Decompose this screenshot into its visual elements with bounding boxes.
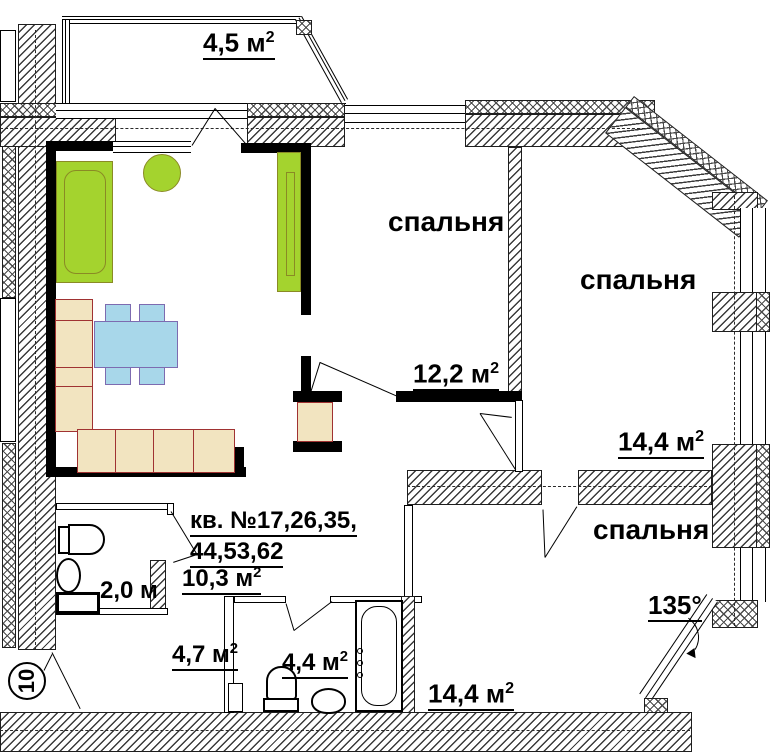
apartment-numbers-line1: кв. №17,26,35, (190, 509, 357, 537)
wall-right-pier-3 (712, 444, 758, 548)
bedroom1-area-label: 12,2 м2 (413, 360, 499, 391)
bedroom3-door-chord (542, 510, 545, 558)
kitchen-divider (55, 386, 93, 387)
wc-wall-top (56, 503, 174, 510)
kitchen-divider (55, 320, 93, 321)
wall-corridor-bedroom2 (515, 400, 523, 472)
bathroom-sink-icon (311, 688, 346, 714)
bedroom2-label: спальня (580, 266, 696, 294)
bedroom1-door-chord (310, 362, 321, 395)
bathroom-wall-top-left (234, 596, 286, 603)
apartment-numbers-line2: 44,53,62 (190, 540, 283, 568)
bathtub-inner (361, 606, 397, 706)
corridor-area-label: 10,3 м2 (182, 566, 261, 595)
balcony-corner-block (296, 20, 312, 35)
balcony-parapet-top (62, 16, 302, 24)
wall-corridor-band-left (407, 470, 542, 505)
bathtub-detail (357, 648, 363, 654)
wall-corner-block-top (712, 600, 758, 628)
kitchen-divider (153, 429, 154, 473)
chair (139, 365, 165, 385)
bedroom2-area-label: 14,4 м2 (618, 428, 704, 459)
kitchen-divider (193, 429, 194, 473)
wardrobe-detail (286, 172, 295, 276)
kitchen-units-row (77, 429, 235, 473)
wall-top-a-insulation (247, 103, 345, 117)
kitchen-divider (55, 367, 93, 368)
axis-line-corridor (407, 486, 712, 487)
bathroom-area-label: 4,4 м2 (282, 650, 348, 679)
bedroom2-window-2 (740, 332, 766, 444)
plant-icon (143, 154, 181, 192)
kitchen-units-column (55, 299, 93, 432)
axis-line-left (35, 30, 36, 650)
wc-width-label: 2,0 м (100, 579, 158, 603)
axis-marker-label: 10 (14, 669, 40, 693)
axis-line-top (0, 128, 650, 129)
wall-right-pier-2 (712, 292, 758, 332)
hall-area-label: 4,7 м2 (172, 642, 238, 671)
bedroom3-door-leaf (545, 506, 578, 557)
wall-left-insulation-2 (2, 443, 16, 648)
bedroom2-door-chord (480, 413, 512, 418)
kitchen-divider (115, 429, 116, 473)
wall-topright-angled-body (605, 107, 759, 238)
wall-bottom (0, 712, 692, 752)
wall-corner-block-bottom (644, 698, 668, 713)
bedroom3-wall-left-lower (401, 596, 415, 713)
bathtub-detail (357, 660, 363, 666)
washing-machine-icon (56, 592, 100, 614)
sofa-cushion (64, 170, 106, 274)
bedroom3-window-right (740, 548, 766, 602)
bedroom3-label: спальня (593, 516, 709, 544)
bedroom3-area-label: 14,4 м2 (428, 680, 514, 711)
bedroom2-door-leaf (480, 413, 517, 470)
wall-corridor-band-right (578, 470, 712, 505)
balcony-area-label: 4,5 м2 (203, 29, 275, 60)
bedroom3-wall-left-upper (404, 505, 413, 597)
axis-marker-circle: 10 (8, 662, 46, 700)
axis-marker-leader (44, 654, 53, 671)
wall-bedroom1-bottom (396, 391, 522, 402)
axis-line-right (734, 196, 735, 626)
bathtub-detail (357, 672, 363, 678)
livingroom-wall-right-upper (301, 143, 311, 315)
neighbour-window-mid (0, 298, 16, 442)
livingroom-wall-topleft (46, 141, 118, 151)
dining-table (94, 321, 178, 368)
neighbour-window-top (0, 30, 16, 102)
bedroom1-label: спальня (388, 208, 504, 236)
axis-line-bottom (0, 730, 690, 731)
duct-cabinet (297, 402, 333, 442)
corner-angle-label: 135° (648, 592, 702, 622)
chair (105, 365, 131, 385)
bathroom-door-leaf (294, 601, 333, 631)
livingroom-balcony-window (113, 141, 191, 153)
bedroom2-window-1 (740, 208, 766, 292)
bathroom-toilet-tank-icon (263, 698, 299, 712)
bathroom-door-chord (286, 604, 295, 631)
wall-right-pier-3-insulation (756, 444, 770, 548)
wc-sink-icon (56, 558, 81, 593)
wc-toilet-icon (68, 524, 105, 555)
hall-door-leaf (228, 683, 243, 712)
wall-bedroom1-bedroom2 (508, 147, 522, 393)
entry-door-leaf (52, 652, 81, 709)
floor-plan: 10 4,5 м2 спальня 12,2 м2 спальня 14,4 м… (0, 0, 770, 755)
balcony-parapet-left (62, 20, 70, 105)
duct-frame-bottom (293, 441, 342, 452)
duct-frame-top (293, 391, 342, 402)
bedroom1-window (345, 105, 465, 123)
wall-right-pier-2-insulation (756, 292, 770, 332)
